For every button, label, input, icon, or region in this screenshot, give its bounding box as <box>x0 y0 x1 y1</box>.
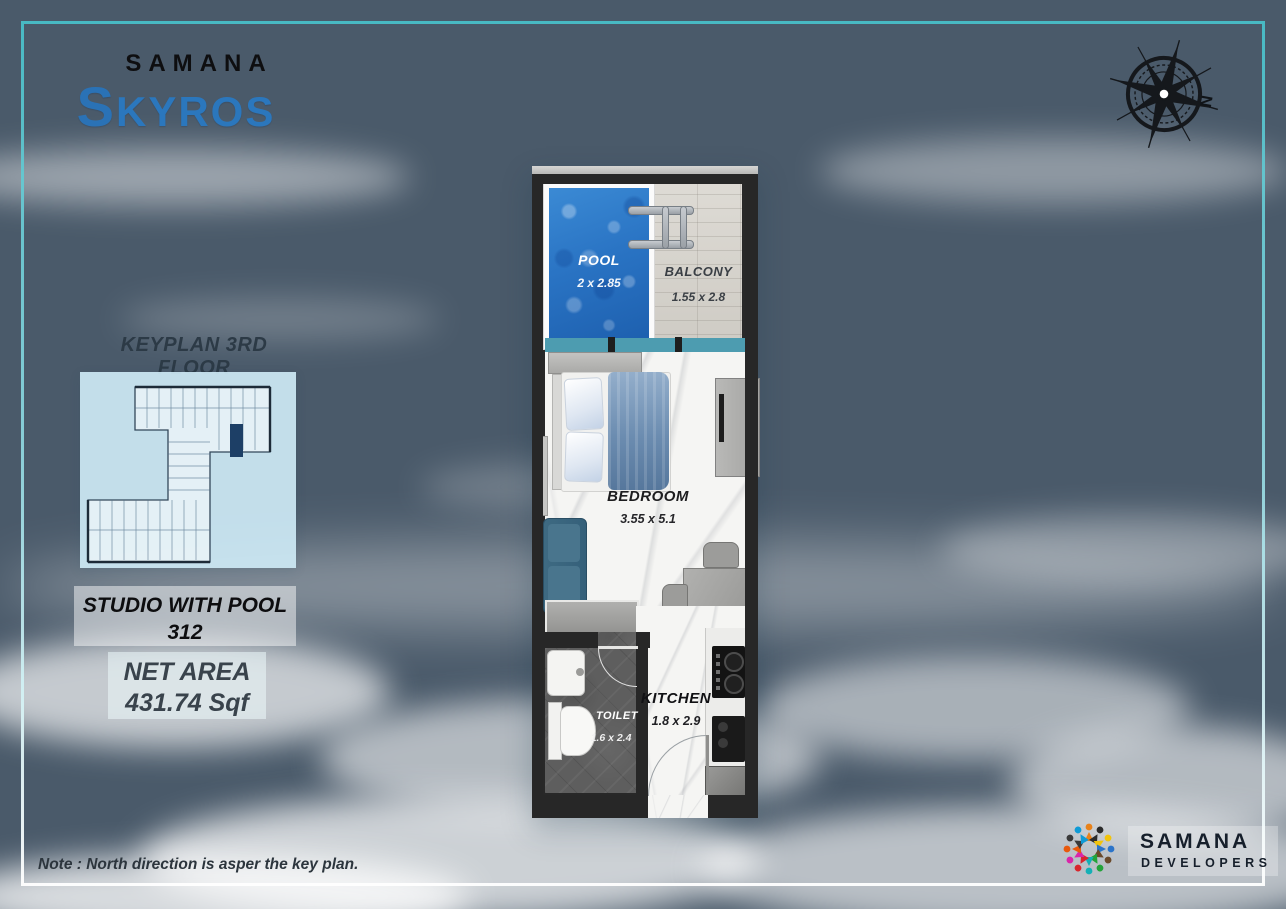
unit-number: 312 <box>74 619 296 646</box>
keyplan-map <box>80 372 296 568</box>
bedroom-dims: 3.55 x 5.1 <box>568 512 728 526</box>
keyplan-building-outline <box>80 372 296 568</box>
balcony-area <box>655 180 742 338</box>
bed-duvet <box>608 372 669 490</box>
stove-knobs <box>716 654 720 690</box>
bedroom-label: BEDROOM <box>568 488 728 505</box>
unit-type-label: STUDIO WITH POOL <box>74 592 296 619</box>
floorplan: POOL 2 x 2.85 BALCONY 1.55 x 2.8 BEDROOM… <box>532 166 758 818</box>
window-mullion <box>675 337 682 353</box>
pool-ladder-icon <box>680 206 687 249</box>
stove-burner <box>724 652 744 672</box>
compass-icon <box>1104 34 1224 154</box>
pool-label: POOL <box>548 252 650 268</box>
toilet-door-leaf <box>598 646 638 649</box>
pillow <box>564 377 605 431</box>
window-mullion <box>608 337 615 353</box>
wall <box>745 174 758 818</box>
developer-tagline: DEVELOPERS <box>1141 856 1271 870</box>
brand-product-name: SKYROS <box>56 74 296 139</box>
toilet-dims: 1.6 x 2.4 <box>566 732 656 744</box>
entry-threshold <box>648 795 708 818</box>
wardrobe-handle <box>719 394 724 442</box>
net-area-label: NET AREA <box>108 657 266 688</box>
entry-door-leaf <box>706 735 709 795</box>
pillow <box>564 431 604 482</box>
developer-name: SAMANA <box>1140 830 1250 854</box>
wall <box>532 795 648 818</box>
shelf <box>548 352 642 374</box>
wall <box>532 174 758 184</box>
net-area-card: NET AREA 431.74 Sqf <box>108 652 266 719</box>
sofa-cushion <box>548 566 580 604</box>
cloud-shape <box>0 148 410 206</box>
balcony-label: BALCONY <box>655 264 742 279</box>
poster-canvas: SAMANA SKYROS N KEYPLAN <box>0 0 1286 909</box>
closet <box>545 600 639 634</box>
pool-dims: 2 x 2.85 <box>548 276 650 290</box>
kitchen-label: KITCHEN <box>616 690 736 707</box>
window-band <box>545 338 745 352</box>
unit-card: STUDIO WITH POOL 312 <box>74 586 296 646</box>
kitchen-dims: 1.8 x 2.9 <box>616 714 736 728</box>
brand-logo: SAMANA SKYROS <box>56 50 296 139</box>
balcony-dims: 1.55 x 2.8 <box>655 290 742 304</box>
parapet-strip <box>532 166 758 174</box>
sink-tap-icon <box>576 668 584 676</box>
pool-ladder-icon <box>662 206 669 249</box>
developer-logo-icon <box>1058 818 1120 880</box>
chair <box>703 542 739 568</box>
keyplan-highlight-unit <box>230 424 243 457</box>
sofa-cushion <box>548 524 580 562</box>
note-text: Note : North direction is asper the key … <box>38 856 358 874</box>
wall <box>532 174 543 818</box>
net-area-value: 431.74 Sqf <box>108 688 266 719</box>
sink-basin <box>718 738 728 748</box>
